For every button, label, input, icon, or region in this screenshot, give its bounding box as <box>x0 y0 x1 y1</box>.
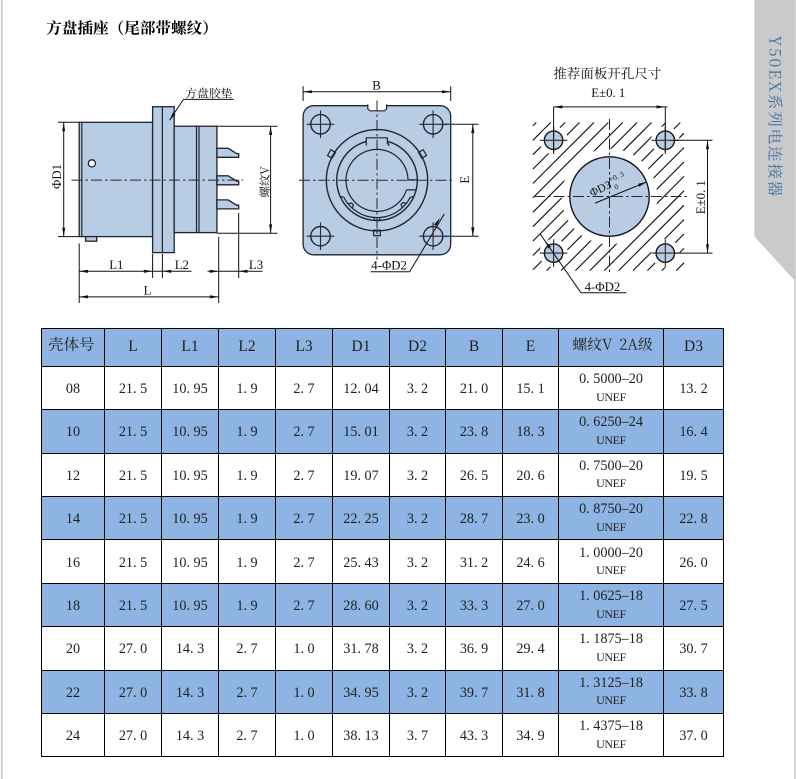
svg-text:ΦD1: ΦD1 <box>50 164 64 189</box>
svg-text:4-ΦD2: 4-ΦD2 <box>371 258 407 272</box>
svg-text:B: B <box>372 78 381 92</box>
svg-text:L3: L3 <box>249 258 263 272</box>
svg-text:L: L <box>144 283 152 297</box>
svg-text:4-ΦD2: 4-ΦD2 <box>585 280 621 294</box>
svg-text:E±0. 1: E±0. 1 <box>591 86 625 100</box>
svg-text:L2: L2 <box>175 258 189 272</box>
svg-text:E: E <box>458 176 472 184</box>
svg-text:E±0. 1: E±0. 1 <box>694 180 708 214</box>
svg-text:L1: L1 <box>109 258 123 272</box>
